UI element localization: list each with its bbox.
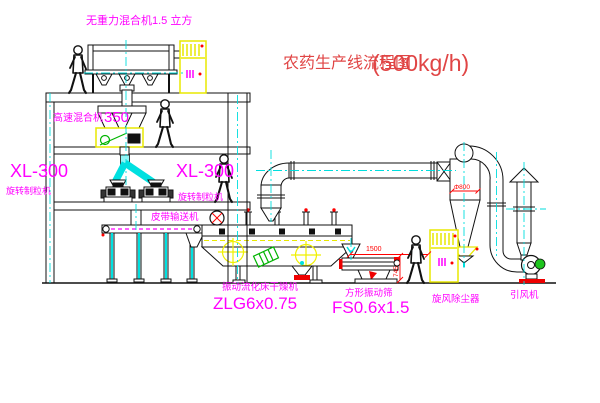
dryer-model-label: ZLG6x0.75 — [213, 294, 297, 313]
gravity-free-mixer — [85, 45, 185, 94]
person-figure-1 — [69, 46, 86, 93]
conveyor-legs — [107, 233, 197, 282]
diagram-title-capacity: (500kg/h) — [372, 50, 469, 76]
high-speed-mixer-model: 350 — [104, 109, 129, 126]
gravity-mixer-label: 无重力混合机1.5 立方 — [86, 13, 192, 27]
person-figure-4 — [407, 236, 424, 283]
granulator-right — [139, 180, 173, 202]
diagram-drawing: 无重力混合机1.5 立方 高速混合机 350 XL-300 旋转制粒机 XL-3… — [0, 0, 600, 403]
person-figure-2 — [156, 100, 173, 147]
granulator-left-model: XL-300 — [10, 161, 68, 181]
dryer-exhaust-duct — [257, 161, 451, 221]
control-cabinet-cyclone — [430, 230, 458, 282]
fluid-bed-dryer — [202, 208, 352, 283]
dryer-name-label: 振动流化床干燥机 — [222, 281, 299, 293]
control-cabinet-top — [180, 41, 206, 93]
granulator-right-model: XL-300 — [176, 161, 234, 181]
process-flow-diagram: 无重力混合机1.5 立方 高速混合机 350 XL-300 旋转制粒机 XL-3… — [0, 0, 600, 403]
sieve-height-dimension: 745 — [393, 266, 400, 277]
belt-conveyor — [102, 225, 205, 282]
cyclone-diameter-dimension: Φ800 — [454, 184, 470, 191]
dryer-spring-mounts — [244, 208, 338, 225]
fan-motor — [535, 259, 545, 269]
granulator-left — [101, 180, 135, 202]
fan-name-label: 引风机 — [510, 289, 539, 301]
induced-draft-fan — [519, 256, 545, 284]
belt-conveyor-label: 皮带输送机 — [151, 211, 199, 223]
granulator-right-name: 旋转制粒机 — [178, 191, 223, 202]
sieve-width-dimension: 1500 — [366, 246, 382, 253]
sieve-model-label: FS0.6x1.5 — [332, 298, 410, 317]
high-speed-mixer-label: 高速混合机 — [53, 111, 103, 124]
rotary-valve — [210, 211, 224, 225]
cyclone-name-label: 旋风除尘器 — [432, 293, 480, 305]
inlet-reducer — [437, 162, 451, 181]
granulator-left-name: 旋转制粒机 — [6, 185, 51, 196]
